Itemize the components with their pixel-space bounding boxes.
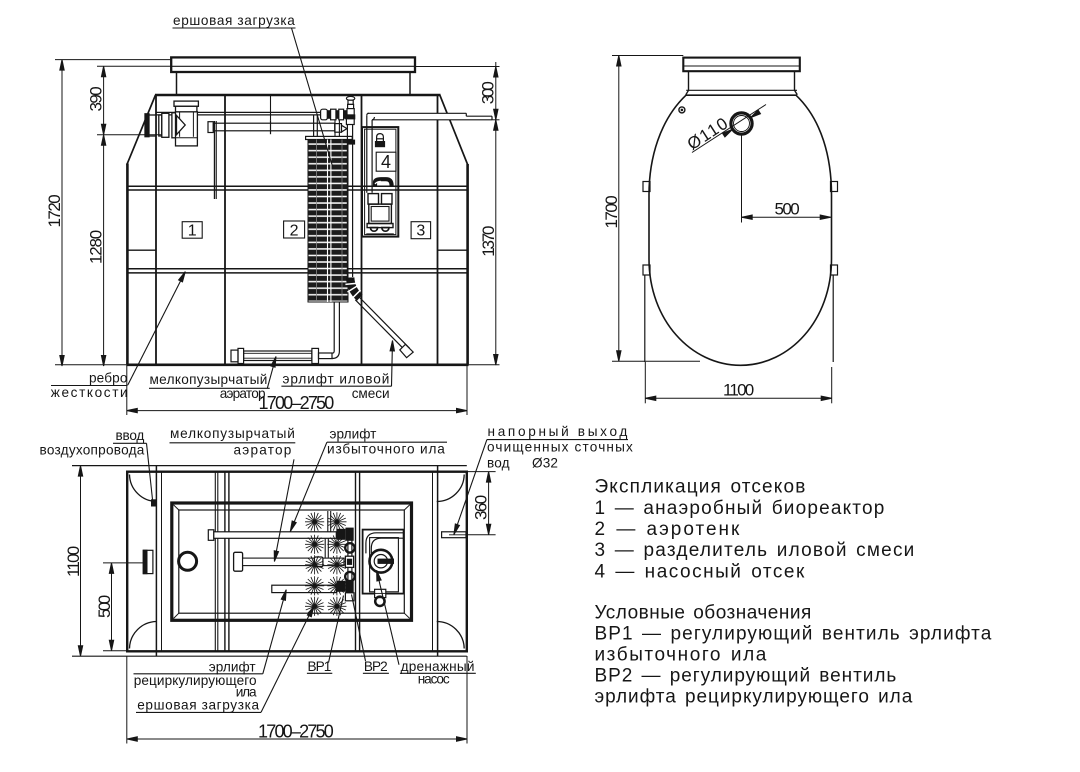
- svg-text:воздухопровода: воздухопровода: [40, 443, 145, 458]
- svg-text:эрлифт иловой: эрлифт иловой: [283, 371, 390, 386]
- svg-text:500: 500: [95, 595, 114, 618]
- svg-text:360: 360: [472, 495, 491, 520]
- svg-text:2: 2: [290, 222, 299, 239]
- svg-text:ввод: ввод: [116, 428, 145, 443]
- svg-text:ВР2: ВР2: [364, 659, 388, 674]
- svg-text:1100: 1100: [723, 381, 754, 400]
- svg-text:4 — насосный отсек: 4 — насосный отсек: [595, 562, 805, 583]
- svg-text:1 — анаэробный биореактор: 1 — анаэробный биореактор: [595, 498, 885, 519]
- svg-text:1720: 1720: [45, 195, 64, 228]
- svg-text:ребро: ребро: [89, 371, 128, 386]
- svg-text:избыточного ила: избыточного ила: [595, 645, 767, 666]
- svg-text:1700–2750: 1700–2750: [259, 393, 335, 413]
- svg-text:мелкопузырчатый: мелкопузырчатый: [170, 426, 295, 441]
- svg-text:390: 390: [87, 87, 106, 112]
- svg-text:аэратор: аэратор: [234, 442, 292, 457]
- svg-text:напорный выход: напорный выход: [488, 424, 628, 439]
- svg-text:300: 300: [478, 81, 497, 104]
- svg-text:ВР1: ВР1: [308, 659, 332, 674]
- svg-text:избыточного ила: избыточного ила: [327, 442, 445, 457]
- svg-text:ершовая загрузка: ершовая загрузка: [137, 698, 259, 713]
- svg-text:1700: 1700: [602, 196, 621, 229]
- svg-text:смеси: смеси: [352, 386, 390, 401]
- svg-text:Условные обозначения: Условные обозначения: [595, 603, 812, 624]
- svg-text:эрлифт: эрлифт: [330, 427, 377, 442]
- svg-text:2 — аэротенк: 2 — аэротенк: [595, 519, 740, 540]
- svg-text:1700–2750: 1700–2750: [258, 721, 334, 741]
- svg-text:500: 500: [775, 200, 800, 219]
- svg-text:ВР1 — регулирующий вентиль эрл: ВР1 — регулирующий вентиль эрлифта: [595, 624, 992, 645]
- svg-text:эрлифта рециркулирующего ила: эрлифта рециркулирующего ила: [595, 687, 913, 708]
- svg-text:1100: 1100: [64, 546, 83, 577]
- svg-text:ВР2 — регулирующий вентиль: ВР2 — регулирующий вентиль: [595, 666, 897, 687]
- svg-text:4: 4: [381, 152, 391, 172]
- svg-text:1370: 1370: [479, 226, 498, 257]
- svg-text:Экспликация отсеков: Экспликация отсеков: [595, 477, 806, 498]
- svg-text:вод: вод: [487, 455, 510, 470]
- svg-text:1280: 1280: [87, 230, 106, 264]
- svg-text:очищенных сточных: очищенных сточных: [487, 440, 633, 455]
- svg-text:ершовая загрузка: ершовая загрузка: [173, 13, 295, 28]
- svg-text:3: 3: [416, 223, 425, 240]
- svg-text:1: 1: [188, 223, 197, 240]
- svg-text:Ø32: Ø32: [532, 455, 558, 470]
- svg-text:жесткости: жесткости: [51, 385, 128, 400]
